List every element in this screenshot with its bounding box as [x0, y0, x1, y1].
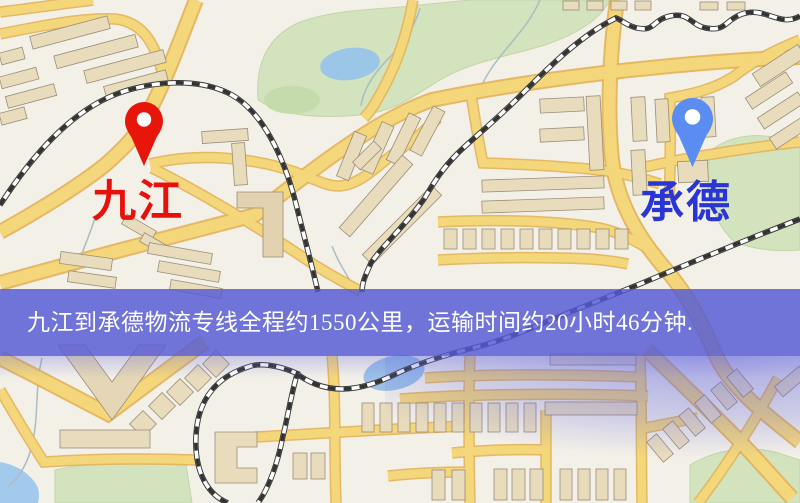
map-canvas[interactable] — [0, 0, 800, 503]
destination-label: 承德 — [640, 181, 732, 225]
route-info-banner: 九江到承德物流专线全程约1550公里，运输时间约20小时46分钟. — [0, 289, 800, 356]
origin-label: 九江 — [92, 180, 184, 224]
logistics-route-map: 九江 承德 九江到承德物流专线全程约1550公里，运输时间约20小时46分钟. — [0, 0, 800, 503]
route-info-text: 九江到承德物流专线全程约1550公里，运输时间约20小时46分钟. — [27, 310, 693, 335]
